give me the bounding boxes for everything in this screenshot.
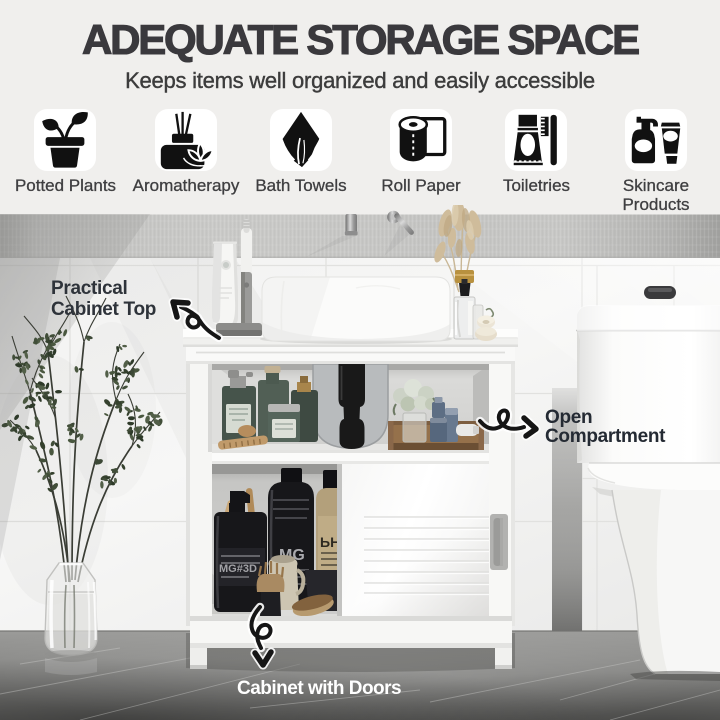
svg-text:Cabinet with Doors: Cabinet with Doors	[237, 678, 401, 699]
svg-text:Compartment: Compartment	[545, 426, 666, 447]
svg-text:MG#3D: MG#3D	[219, 563, 257, 575]
svg-text:Practical: Practical	[51, 278, 128, 299]
svg-text:Cabinet Top: Cabinet Top	[51, 299, 156, 320]
svg-text:Open: Open	[545, 407, 592, 428]
